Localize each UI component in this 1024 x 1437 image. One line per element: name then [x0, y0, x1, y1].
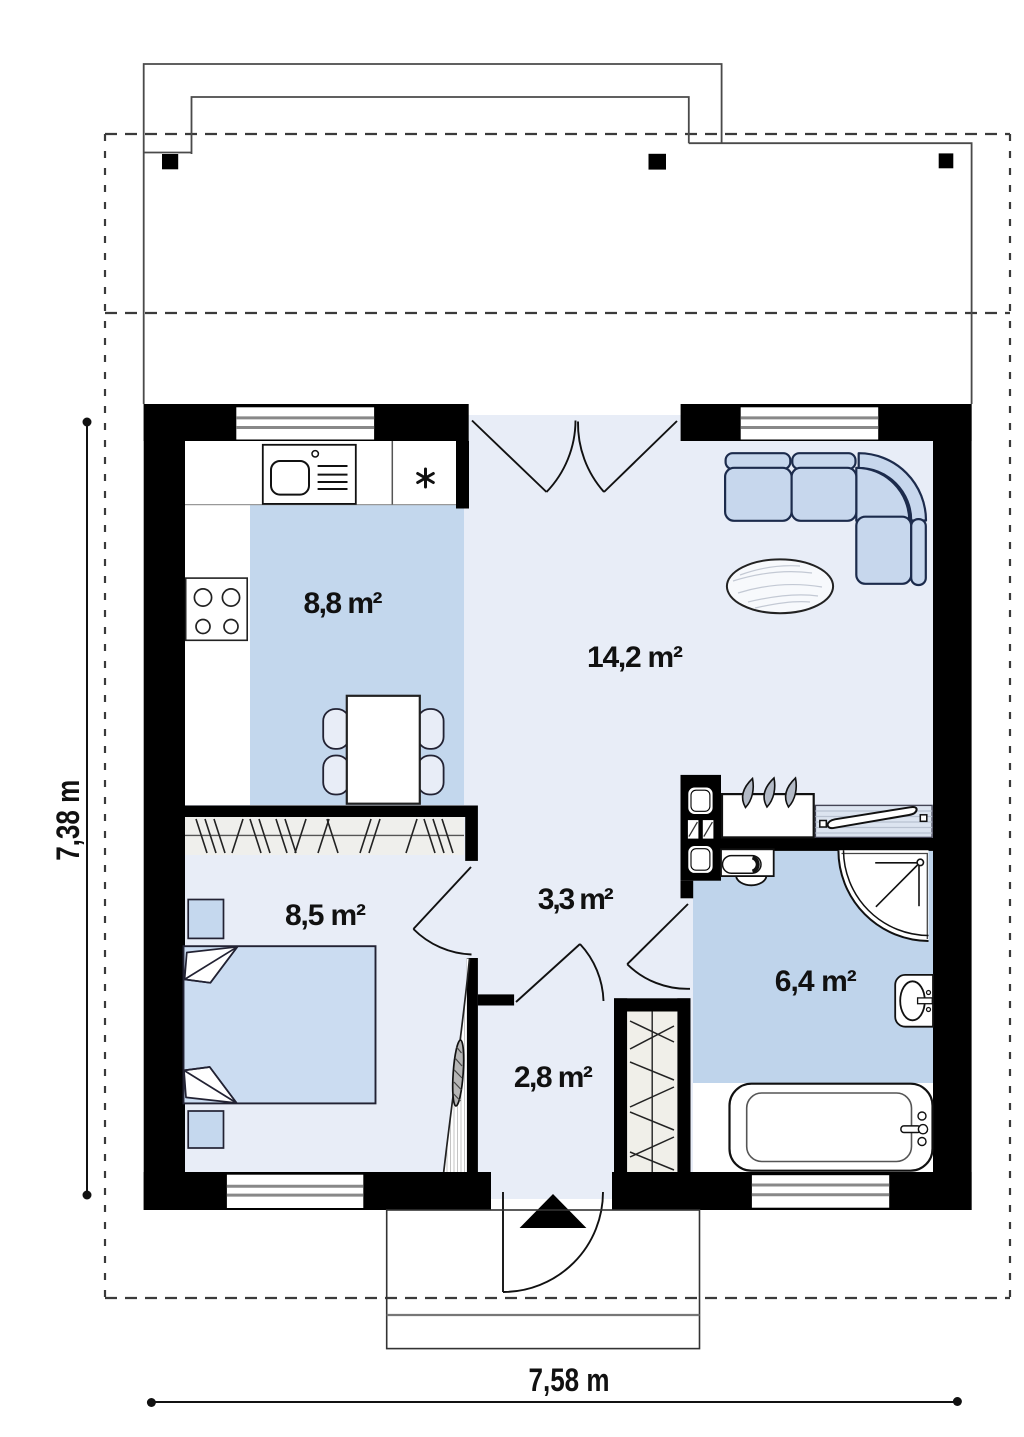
svg-text:2,8 m²: 2,8 m² — [514, 1061, 593, 1094]
svg-text:8,5 m²: 8,5 m² — [285, 899, 366, 932]
svg-text:3,3 m²: 3,3 m² — [538, 883, 614, 916]
svg-text:14,2 m²: 14,2 m² — [587, 641, 683, 674]
svg-text:7,58 m: 7,58 m — [529, 1362, 610, 1398]
svg-text:6,4 m²: 6,4 m² — [775, 965, 857, 998]
svg-text:7,38 m: 7,38 m — [50, 780, 86, 861]
svg-text:8,8 m²: 8,8 m² — [304, 587, 383, 620]
